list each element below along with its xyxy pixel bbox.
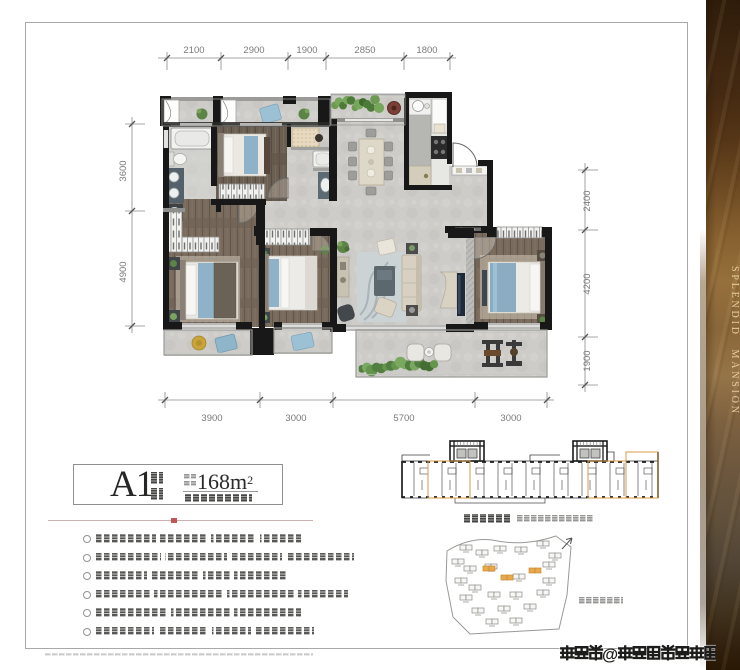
svg-text:2850: 2850	[354, 45, 375, 56]
svg-text:4200: 4200	[582, 273, 593, 294]
svg-text:2400: 2400	[582, 190, 593, 211]
svg-text:5700: 5700	[393, 413, 414, 424]
svg-text:1900: 1900	[296, 45, 317, 56]
svg-text:@: @	[602, 646, 618, 664]
svg-text:3600: 3600	[118, 160, 129, 181]
svg-text:2100: 2100	[183, 45, 204, 56]
svg-text:4900: 4900	[118, 261, 129, 282]
svg-text:3000: 3000	[500, 413, 521, 424]
svg-text:1800: 1800	[416, 45, 437, 56]
svg-text:3900: 3900	[201, 413, 222, 424]
svg-text:1900: 1900	[582, 350, 593, 371]
svg-text:2900: 2900	[243, 45, 264, 56]
svg-text:3000: 3000	[285, 413, 306, 424]
